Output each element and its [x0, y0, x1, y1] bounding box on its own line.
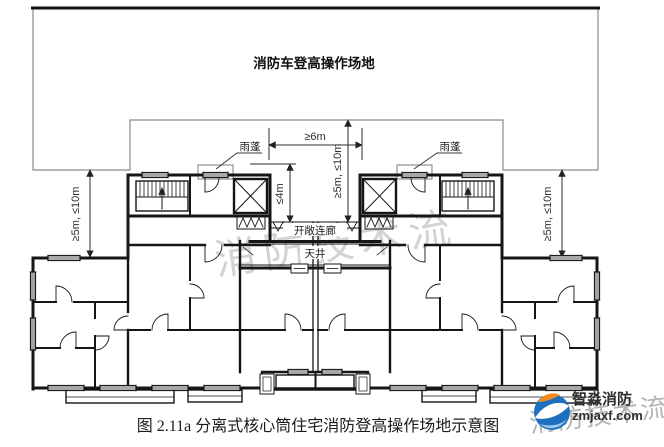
- dimension-recess-depth-label: ≤4m: [274, 183, 286, 204]
- dimension-left-depth-label: ≥5m, ≤10m: [70, 187, 82, 242]
- operation-site-label: 消防车登高操作场地: [253, 55, 375, 71]
- figure-page: 消防技术流 消防车登高操作场地 ≥6m ≥5m, ≤10: [0, 0, 664, 447]
- canopy-left-label: 雨蓬: [240, 141, 261, 153]
- figure-caption: 图 2.11a 分离式核心筒住宅消防登高操作场地示意图: [137, 416, 500, 435]
- logo-name: 智淼消防: [572, 390, 632, 408]
- dimension-right-depth-label: ≥5m, ≤10m: [542, 187, 554, 242]
- fire-access-diagram: 消防技术流 消防车登高操作场地 ≥6m ≥5m, ≤10: [0, 0, 664, 447]
- dimension-6m-label: ≥6m: [304, 131, 325, 143]
- floor-plan: [30, 172, 599, 403]
- open-corridor-label: 开敞连廊: [294, 224, 336, 237]
- left-stair-tower: [128, 175, 270, 229]
- right-entrance-door: [411, 178, 425, 192]
- partitions-right: [318, 245, 597, 388]
- logo-url: zmjaxf.com: [572, 408, 643, 423]
- dimension-center-depth-label: ≥5m, ≤10m: [332, 144, 344, 199]
- light-well-label: 天井: [305, 247, 326, 260]
- canopy-right-leader: [414, 153, 462, 169]
- canopy-left-leader: [216, 153, 262, 169]
- left-entrance-door: [205, 178, 219, 192]
- operation-site: 消防车登高操作场地: [31, 8, 600, 170]
- canopy-right-label: 雨蓬: [440, 141, 461, 153]
- generated-detail: [30, 172, 599, 390]
- operation-site-outline: [33, 8, 598, 170]
